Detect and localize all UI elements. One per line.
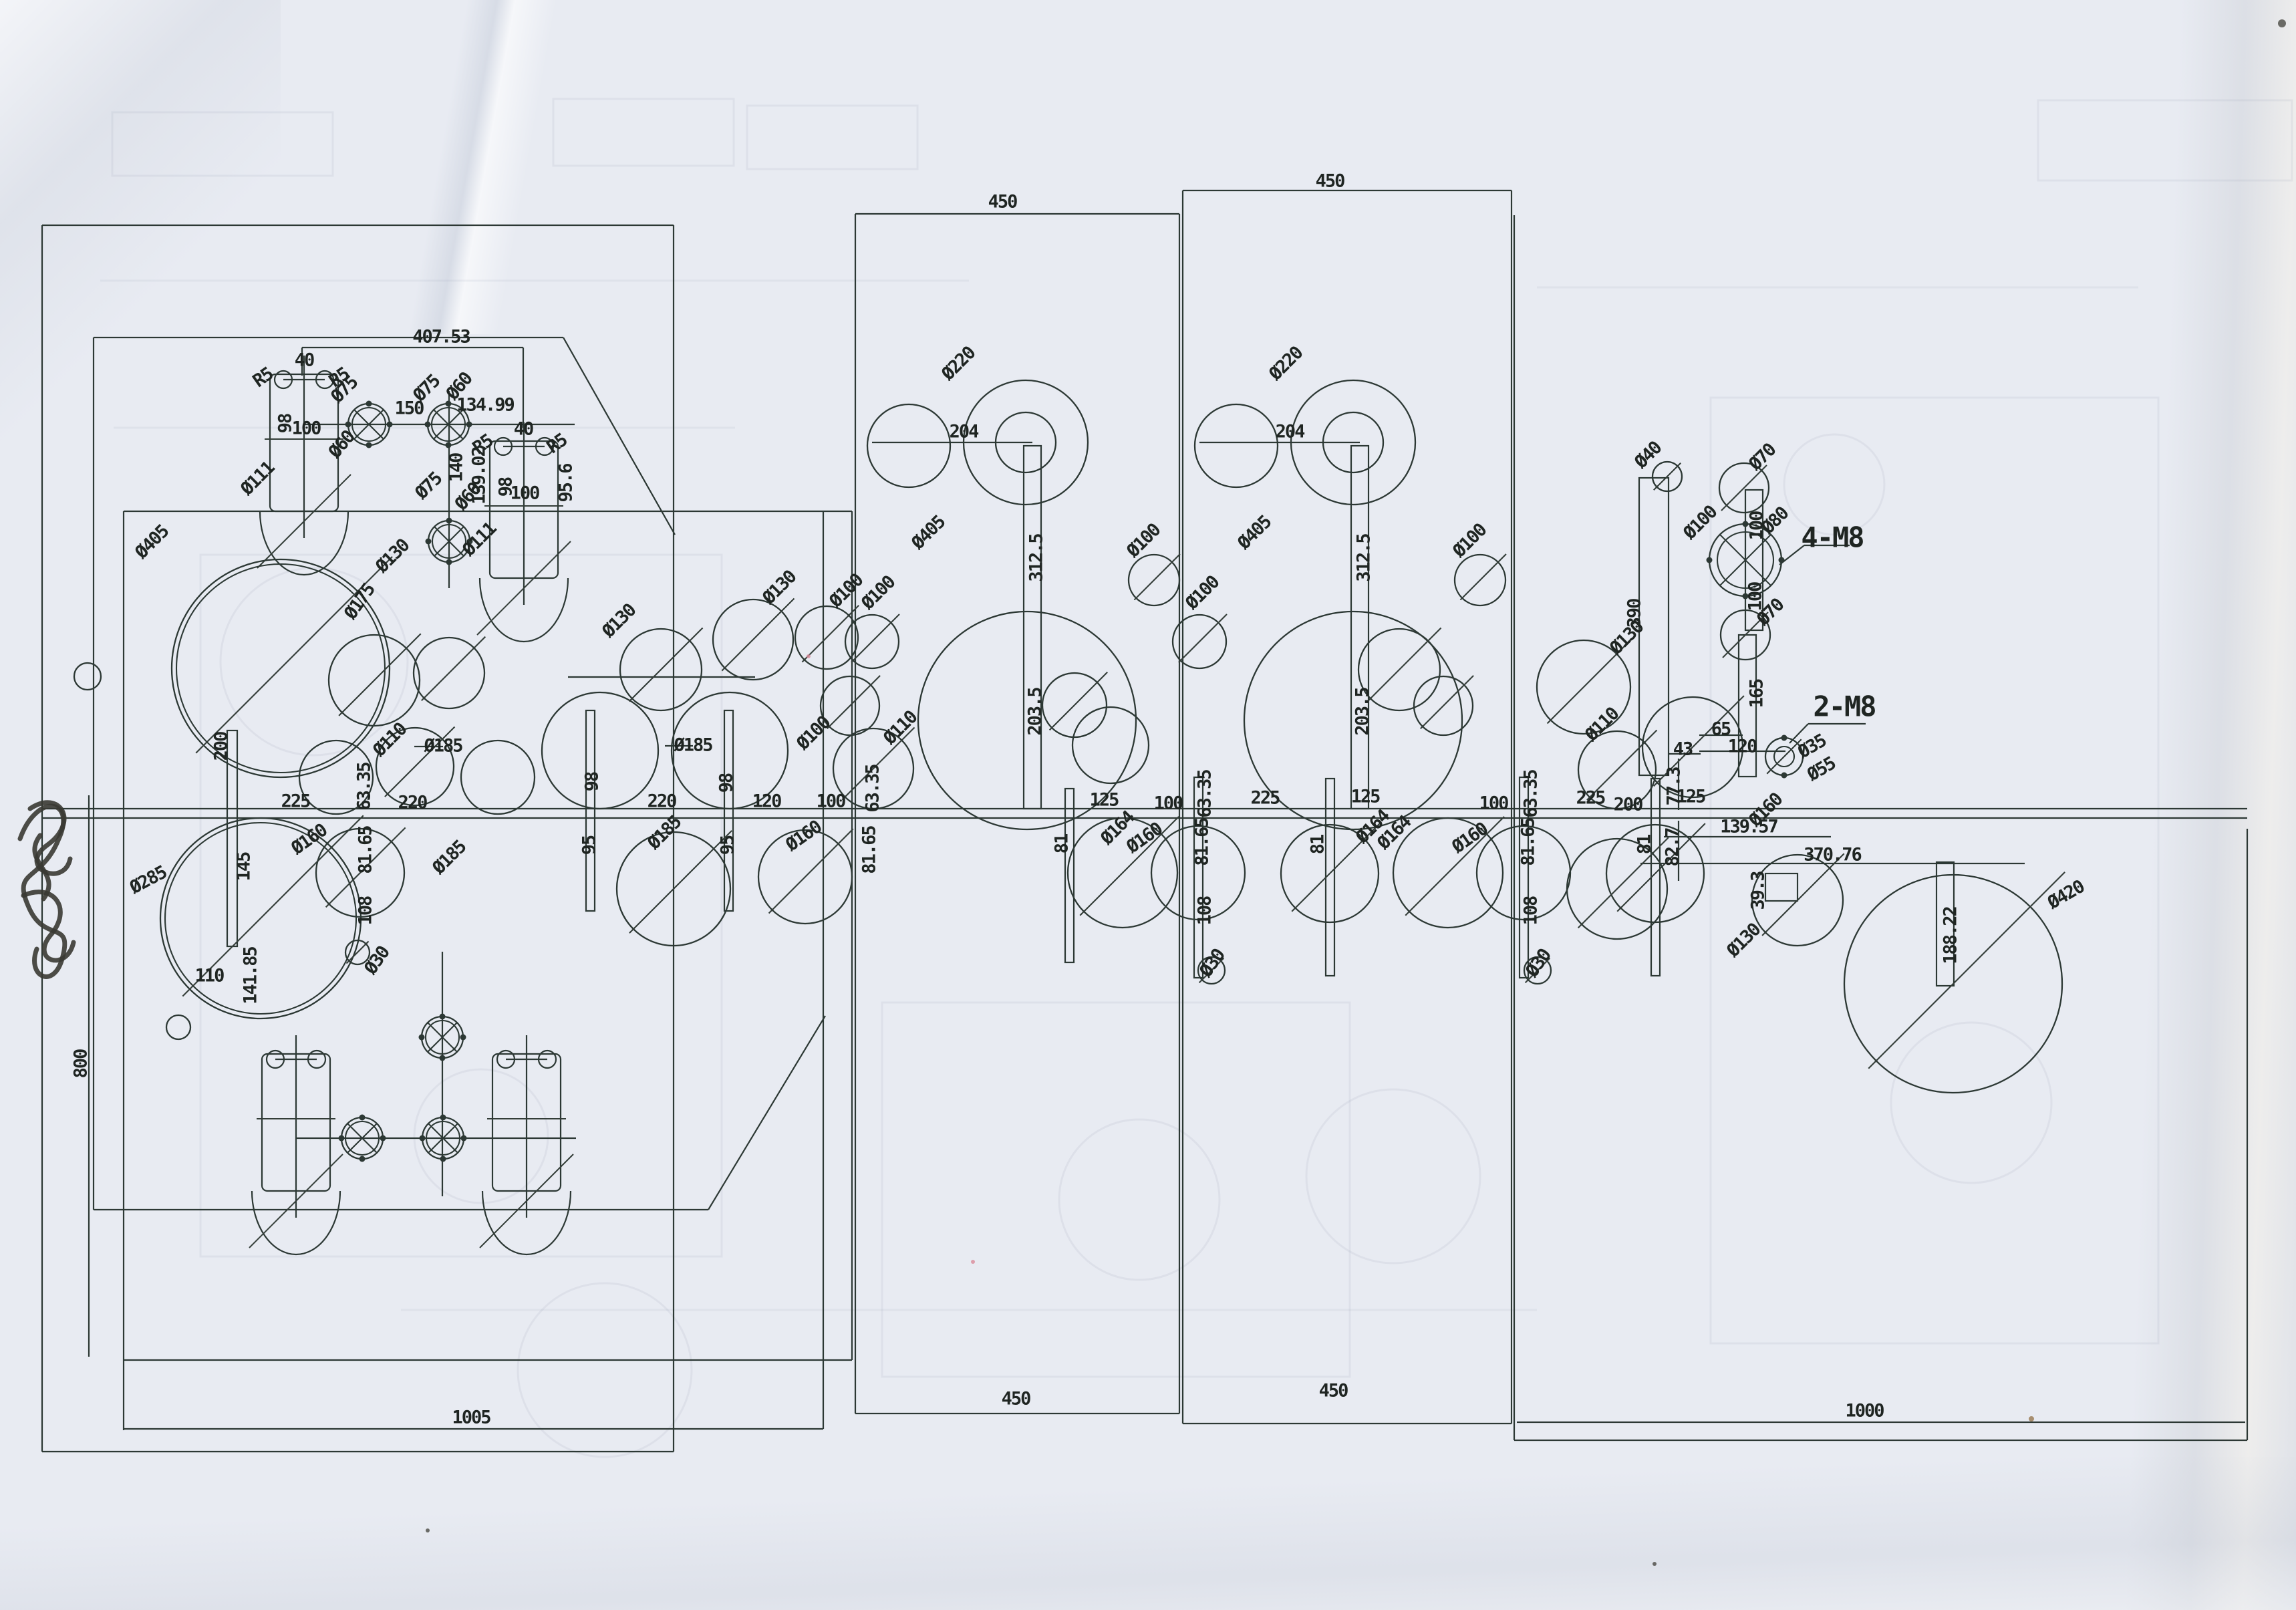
ghost-circle [1059, 1119, 1219, 1280]
bolt-dot [461, 1135, 467, 1142]
dim-label: Ø130 [1722, 920, 1764, 962]
dim-label: 39.3 [1748, 871, 1769, 910]
diameter-leader [339, 634, 421, 716]
bolt-dot [425, 422, 431, 428]
thread-callout-label: 2-M8 [1813, 690, 1875, 723]
diameter-leader [1868, 872, 2065, 1069]
diameter-leader [802, 606, 859, 662]
dim-label: 203.5 [1025, 688, 1046, 736]
dim-label: 450 [1316, 171, 1345, 192]
bolt-dot [440, 1014, 446, 1020]
scan-speck [1653, 1562, 1657, 1566]
bolt-dot [440, 1055, 446, 1061]
dim-label: 108 [355, 896, 376, 926]
diameter-leader [1405, 817, 1504, 916]
bolt-dot [446, 401, 452, 407]
dim-label: 220 [648, 791, 677, 812]
scan-speck [2029, 1416, 2034, 1422]
diameter-leader [1762, 853, 1844, 936]
keyway-slot [586, 710, 595, 911]
dim-label: Ø405 [1233, 512, 1275, 554]
dim-label: Ø420 [2043, 876, 2088, 914]
dim-label: 370.76 [1804, 845, 1861, 865]
scan-speck [971, 1260, 975, 1264]
dim-label: 63.35 [1195, 770, 1215, 818]
ghost-circle [221, 568, 408, 755]
diameter-leader [629, 831, 732, 933]
bolt-dot [360, 1115, 366, 1121]
dim-label: 204 [950, 422, 980, 442]
keyway-slot [1765, 874, 1798, 901]
dim-label: 134.99 [456, 395, 514, 416]
dim-label: 63.35 [863, 765, 883, 813]
scanned-drawing-page: { "canvas": {"w": 3436, "h": 2409}, "col… [0, 0, 2296, 1610]
roller-circle [1072, 707, 1149, 783]
bolt-dot [1781, 735, 1787, 741]
dim-label: 312.5 [1354, 534, 1375, 582]
roller-circle [867, 404, 950, 487]
structure-line [563, 338, 675, 535]
dim-label: Ø185 [428, 837, 470, 879]
bolt-dot [440, 1115, 446, 1121]
slash-leader [1654, 463, 1681, 490]
dim-label: 43 [1673, 739, 1693, 760]
dim-label: 100 [817, 791, 846, 812]
diameter-leader [1460, 554, 1506, 600]
ghost-rect [2038, 100, 2292, 180]
dim-label: 77.3 [1664, 767, 1685, 806]
roller-circle [74, 663, 101, 690]
dim-label: Ø70 [1745, 440, 1780, 475]
dim-label: R5 [543, 430, 571, 458]
ghost-rect [553, 99, 734, 166]
bolt-dot [380, 1135, 386, 1142]
bolt-dot [446, 442, 452, 448]
dim-label: Ø110 [1580, 704, 1622, 746]
diameter-leader [629, 628, 703, 701]
thread-callout-label: 4-M8 [1801, 521, 1863, 554]
bolt-dot [1779, 557, 1785, 563]
dim-label: 165 [1747, 679, 1767, 708]
dim-label: Ø40 [1630, 438, 1666, 473]
dim-label: 220 [398, 793, 428, 813]
dim-label: 125 [1351, 787, 1381, 807]
dim-label: 108 [1521, 896, 1542, 926]
dim-label: Ø130 [597, 600, 639, 642]
diameter-leader [1617, 823, 1705, 912]
dim-label: 1000 [1845, 1401, 1884, 1422]
bolt-dot [339, 1135, 345, 1142]
diameter-leader [827, 676, 880, 728]
bolt-dot [466, 422, 472, 428]
bolt-dot [1781, 773, 1787, 779]
dim-label: 390 [1624, 599, 1645, 628]
bolt-dot [387, 422, 393, 428]
ghost-circle [1784, 434, 1884, 535]
dim-label: Ø130 [758, 567, 800, 609]
dim-label: Ø220 [937, 343, 979, 385]
dim-label: 140 [446, 453, 467, 483]
dim-label: Ø100 [1181, 572, 1223, 614]
scan-speck [2278, 19, 2286, 27]
dim-label: 81 [1052, 834, 1072, 853]
dim-label: Ø111 [236, 458, 278, 500]
roller-circle [166, 1015, 190, 1039]
dim-label: 120 [1728, 736, 1757, 757]
dim-label: Ø100 [1679, 502, 1721, 544]
bolt-dot [360, 1156, 366, 1162]
roller-circle [1195, 404, 1278, 487]
dim-label: 98 [716, 773, 737, 793]
ghost-circle [1891, 1023, 2051, 1183]
dim-label: 407.53 [412, 327, 470, 348]
bolt-dot [426, 539, 432, 545]
bolt-dot [1707, 557, 1713, 563]
diameter-leader [1578, 837, 1669, 928]
blueprint-svg: 45045010054504501000800407.5340R5R598100… [0, 0, 2296, 1610]
dim-label: 40 [295, 350, 314, 371]
diameter-leader [1421, 676, 1473, 728]
scan-speck [426, 1528, 430, 1532]
dim-label: R5 [249, 364, 277, 392]
dim-label: 1005 [452, 1407, 490, 1428]
dim-label: Ø185 [423, 736, 462, 757]
dim-label: 100 [511, 483, 540, 504]
dim-label: 81 [1308, 835, 1328, 854]
ghost-circle [414, 1069, 548, 1203]
dim-label: 120 [752, 791, 782, 812]
dim-label: 204 [1276, 422, 1306, 442]
bolt-dot [446, 518, 452, 524]
diameter-leader [1368, 628, 1441, 701]
dim-label: 100 [1154, 793, 1183, 814]
ghost-rect [112, 112, 333, 176]
bolt-dot [345, 422, 351, 428]
ghost-rect [747, 106, 917, 169]
dim-label: 145 [234, 852, 255, 882]
dim-label: 225 [1576, 788, 1606, 809]
bolt-dot [419, 1035, 425, 1041]
diameter-leader [1080, 817, 1179, 916]
dim-label: 100 [292, 418, 321, 439]
dim-label: Ø220 [1264, 343, 1306, 385]
bolt-dot [446, 559, 452, 565]
dim-label: Ø110 [879, 707, 921, 749]
scan-speck [807, 654, 811, 658]
roller-circle [461, 741, 535, 814]
dim-label: 81.65 [1518, 818, 1539, 866]
dim-label: 312.5 [1026, 534, 1047, 582]
dim-label: Ø160 [287, 820, 331, 859]
dim-label: 63.35 [354, 763, 375, 811]
dim-label: 82.7 [1663, 828, 1683, 867]
dim-label: 225 [281, 791, 311, 812]
dim-label: 108 [1195, 896, 1215, 926]
dim-label: 450 [988, 192, 1018, 213]
dim-label: Ø160 [781, 817, 825, 856]
dim-label: 98 [582, 772, 603, 791]
dim-label: 800 [71, 1049, 92, 1079]
dim-label: 188.22 [1941, 906, 1961, 964]
dim-label: 225 [1251, 788, 1280, 809]
dim-label: Ø185 [673, 735, 712, 756]
diameter-leader [722, 598, 794, 670]
ghost-rect [1711, 398, 2158, 1343]
dim-label: 200 [211, 732, 232, 761]
bolt-dot [366, 442, 372, 448]
dim-label: Ø405 [907, 512, 949, 554]
dim-label: 139.57 [1720, 817, 1777, 837]
dim-label: 100 [1479, 793, 1509, 814]
bolt-dot [460, 1035, 466, 1041]
bolt-dot [420, 1135, 426, 1142]
structure-line [708, 1016, 825, 1210]
dim-label: 81.65 [355, 826, 376, 874]
dim-label: Ø405 [130, 521, 172, 563]
keyway-slot [1065, 789, 1074, 962]
dim-label: 200 [1614, 795, 1643, 815]
dim-label: 100 [1747, 511, 1767, 541]
dim-label: Ø100 [792, 712, 834, 755]
dim-label: 63.35 [1521, 770, 1542, 818]
dim-label: Ø30 [360, 942, 394, 978]
dim-label: 450 [1002, 1389, 1031, 1410]
dim-label: 110 [195, 966, 225, 986]
dim-label: 125 [1090, 790, 1119, 811]
diameter-leader [422, 637, 486, 701]
dim-label: 40 [514, 419, 533, 440]
ghost-circle [1306, 1089, 1480, 1263]
ghost-rect [200, 555, 722, 1256]
keyway-slot [1024, 446, 1041, 809]
dim-label: 81.65 [859, 826, 880, 874]
dim-label: Ø100 [857, 572, 899, 614]
dim-label: 141.85 [241, 946, 261, 1004]
ghost-rect [882, 1002, 1350, 1377]
diameter-leader [1179, 614, 1227, 662]
diameter-leader [1134, 554, 1180, 600]
diameter-leader [1050, 672, 1108, 730]
dim-label: 450 [1319, 1381, 1348, 1401]
dim-label: 81 [1634, 835, 1655, 854]
dim-label: Ø75 [411, 468, 446, 504]
keyway-slot [724, 710, 733, 911]
dim-label: 95.6 [556, 464, 577, 503]
bolt-dot [440, 1156, 446, 1162]
dim-label: 95 [579, 835, 600, 855]
bolt-dot [366, 401, 372, 407]
dim-label: 95 [718, 835, 738, 855]
keyway-slot [1351, 446, 1369, 809]
dim-label: 203.5 [1352, 688, 1373, 736]
dim-label: 81.65 [1192, 818, 1213, 866]
